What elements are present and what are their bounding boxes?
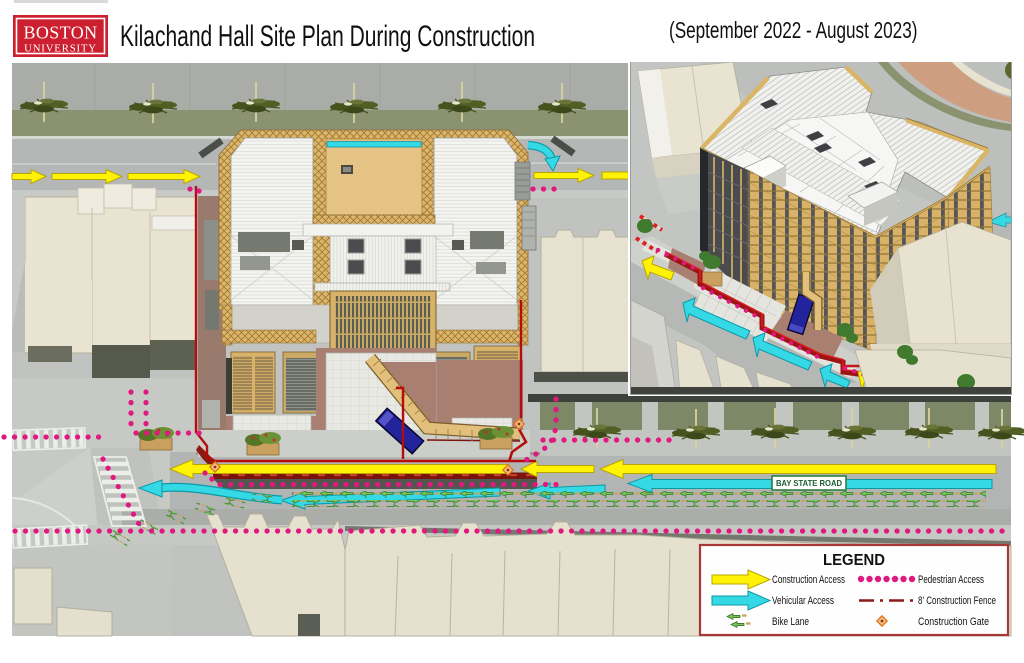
svg-text:BAY STATE ROAD: BAY STATE ROAD (776, 478, 842, 488)
svg-text:Construction Access: Construction Access (772, 574, 845, 586)
svg-text:Pedestrian Access: Pedestrian Access (918, 574, 984, 586)
svg-text:Bike Lane: Bike Lane (772, 616, 809, 628)
svg-text:UNIVERSITY: UNIVERSITY (24, 43, 97, 55)
svg-text:8' Construction Fence: 8' Construction Fence (918, 595, 996, 607)
svg-text:BOSTON: BOSTON (23, 23, 97, 43)
svg-text:Vehicular Access: Vehicular Access (772, 595, 834, 607)
svg-text:Construction Gate: Construction Gate (918, 616, 989, 628)
svg-text:Kilachand HallSite Plan During: Kilachand HallSite Plan During Construct… (120, 21, 535, 53)
svg-text:(September 2022 - August 2023): (September 2022 - August 2023) (669, 19, 917, 44)
svg-text:LEGEND: LEGEND (823, 552, 885, 569)
